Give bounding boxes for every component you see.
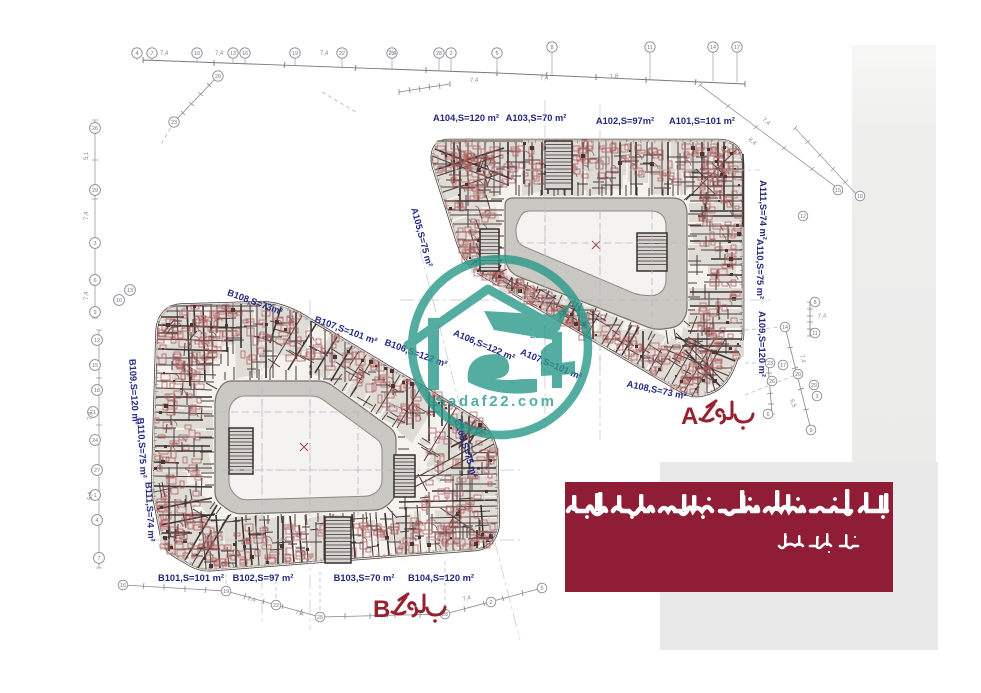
svg-text:12: 12 bbox=[800, 214, 806, 220]
svg-text:9: 9 bbox=[93, 310, 96, 316]
svg-text:18: 18 bbox=[857, 194, 863, 200]
svg-text:10: 10 bbox=[116, 298, 122, 304]
svg-text:2: 2 bbox=[489, 600, 492, 606]
svg-text:Sadaf22.com: Sadaf22.com bbox=[435, 393, 556, 410]
svg-text:A: A bbox=[681, 403, 698, 430]
svg-text:1,8: 1,8 bbox=[610, 74, 619, 80]
svg-text:22: 22 bbox=[273, 603, 279, 609]
svg-text:13: 13 bbox=[230, 51, 236, 57]
svg-text:A104,S=120 m²: A104,S=120 m² bbox=[433, 113, 499, 123]
svg-text:20: 20 bbox=[795, 372, 801, 378]
svg-text:19: 19 bbox=[223, 589, 229, 595]
svg-text:20: 20 bbox=[215, 74, 221, 80]
svg-text:4: 4 bbox=[95, 518, 98, 524]
svg-text:15: 15 bbox=[835, 188, 841, 194]
svg-text:16: 16 bbox=[120, 583, 126, 589]
svg-text:A109,S=120 m²: A109,S=120 m² bbox=[757, 311, 767, 377]
svg-text:7,4: 7,4 bbox=[160, 51, 169, 57]
svg-text:5,1: 5,1 bbox=[84, 151, 90, 160]
svg-text:5: 5 bbox=[495, 51, 498, 57]
svg-text:B102,S=97 m²: B102,S=97 m² bbox=[233, 573, 294, 583]
svg-text:13: 13 bbox=[127, 288, 133, 294]
svg-text:2: 2 bbox=[449, 51, 452, 57]
svg-text:22: 22 bbox=[339, 51, 345, 57]
svg-text:14: 14 bbox=[710, 45, 716, 51]
svg-text:7,4: 7,4 bbox=[320, 51, 329, 57]
svg-text:25: 25 bbox=[317, 615, 323, 621]
svg-text:8: 8 bbox=[813, 300, 816, 306]
svg-text:28: 28 bbox=[436, 51, 442, 57]
svg-text:18: 18 bbox=[94, 388, 100, 394]
svg-text:7,4: 7,4 bbox=[84, 211, 90, 220]
svg-text:B: B bbox=[373, 596, 390, 623]
svg-text:26: 26 bbox=[92, 126, 98, 132]
svg-text:17: 17 bbox=[734, 45, 740, 51]
svg-text:29: 29 bbox=[811, 383, 817, 389]
svg-text:B101,S=101 m²: B101,S=101 m² bbox=[158, 573, 224, 583]
svg-text:11: 11 bbox=[647, 45, 653, 51]
svg-text:7,4: 7,4 bbox=[540, 76, 549, 82]
svg-text:3: 3 bbox=[815, 394, 818, 400]
svg-text:B103,S=70 m²: B103,S=70 m² bbox=[334, 573, 395, 583]
svg-text:6: 6 bbox=[766, 412, 769, 418]
svg-text:27: 27 bbox=[94, 468, 100, 474]
svg-text:15: 15 bbox=[92, 363, 98, 369]
svg-text:7,4: 7,4 bbox=[88, 411, 94, 420]
svg-text:9: 9 bbox=[809, 428, 812, 434]
svg-text:7,4: 7,4 bbox=[818, 313, 827, 320]
svg-text:14: 14 bbox=[782, 325, 788, 331]
svg-text:A111,S=74 m²: A111,S=74 m² bbox=[758, 180, 768, 240]
svg-text:17: 17 bbox=[780, 363, 786, 369]
svg-text:4: 4 bbox=[135, 51, 138, 57]
svg-text:3: 3 bbox=[93, 241, 96, 247]
svg-text:24: 24 bbox=[92, 438, 98, 444]
svg-text:7,4: 7,4 bbox=[470, 78, 479, 84]
svg-text:22: 22 bbox=[530, 330, 542, 341]
svg-text:5: 5 bbox=[540, 586, 543, 592]
svg-text:A101,S=101 m²: A101,S=101 m² bbox=[669, 116, 735, 126]
svg-text:A110,S=75 m²: A110,S=75 m² bbox=[755, 239, 765, 299]
svg-text:7,4: 7,4 bbox=[388, 51, 397, 57]
svg-text:5,4: 5,4 bbox=[88, 491, 94, 500]
svg-text:7,4: 7,4 bbox=[84, 291, 90, 300]
svg-text:7: 7 bbox=[150, 51, 153, 57]
svg-text:A102,S=97m²: A102,S=97m² bbox=[596, 116, 654, 126]
svg-text:19: 19 bbox=[292, 51, 298, 57]
svg-text:B104,S=120 m²: B104,S=120 m² bbox=[408, 573, 474, 583]
svg-text:26: 26 bbox=[769, 379, 775, 385]
svg-text:29: 29 bbox=[92, 188, 98, 194]
svg-text:7,4: 7,4 bbox=[215, 51, 224, 57]
svg-text:12: 12 bbox=[94, 338, 100, 344]
svg-text:6: 6 bbox=[93, 278, 96, 284]
svg-text:16: 16 bbox=[242, 51, 248, 57]
svg-text:7: 7 bbox=[97, 556, 100, 562]
svg-text:23: 23 bbox=[171, 120, 177, 126]
svg-text:11: 11 bbox=[812, 331, 818, 337]
svg-text:10: 10 bbox=[194, 51, 200, 57]
svg-text:8: 8 bbox=[550, 45, 553, 51]
svg-text:A103,S=70 m²: A103,S=70 m² bbox=[506, 113, 567, 123]
